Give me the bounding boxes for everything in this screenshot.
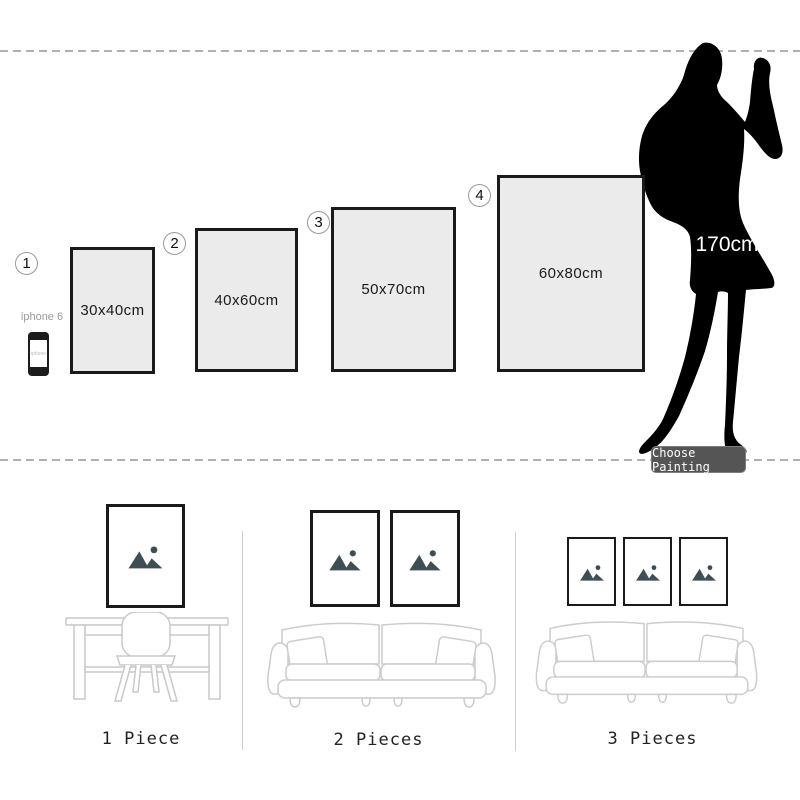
wall-frame: [310, 510, 380, 607]
size-option-30x40: 30x40cm: [70, 247, 155, 374]
scene-divider: [242, 531, 243, 750]
phone-screen-text: iphone: [31, 351, 46, 357]
scene-divider: [515, 532, 516, 751]
sofa-illustration: [534, 611, 760, 706]
size-label: 50x70cm: [361, 281, 425, 298]
scene-2-label: 2 Pieces: [242, 730, 515, 750]
size-number-1: 1: [15, 252, 38, 275]
phone-icon: iphone: [28, 332, 49, 376]
image-placeholder-icon: [691, 562, 717, 582]
size-number-3: 3: [307, 211, 330, 234]
sofa-illustration: [266, 612, 498, 710]
person-height-label: 170cm: [688, 233, 766, 257]
image-placeholder-icon: [408, 546, 442, 572]
image-placeholder-icon: [635, 562, 661, 582]
size-guide-image: 170cm 1 2 3 4 iphone 6 iphone 30x40cm 40…: [0, 0, 800, 800]
desk-and-chair-illustration: [62, 612, 232, 708]
wall-frame: [390, 510, 460, 607]
scene-1-label: 1 Piece: [40, 729, 242, 749]
image-placeholder-icon: [127, 542, 164, 570]
phone-reference-label: iphone 6: [16, 311, 68, 323]
size-number-4: 4: [468, 184, 491, 207]
choose-painting-button[interactable]: Choose Painting: [651, 446, 746, 473]
size-label: 30x40cm: [80, 302, 144, 319]
size-option-50x70: 50x70cm: [331, 207, 456, 372]
scene-3-label: 3 Pieces: [515, 729, 790, 749]
wall-frame: [567, 537, 616, 606]
image-placeholder-icon: [579, 562, 605, 582]
wall-frame: [106, 504, 185, 608]
wall-frame: [623, 537, 672, 606]
wall-frame: [679, 537, 728, 606]
size-option-60x80: 60x80cm: [497, 175, 645, 372]
size-label: 40x60cm: [214, 292, 278, 309]
size-label: 60x80cm: [539, 265, 603, 282]
size-number-2: 2: [163, 232, 186, 255]
image-placeholder-icon: [328, 546, 362, 572]
size-option-40x60: 40x60cm: [195, 228, 298, 372]
